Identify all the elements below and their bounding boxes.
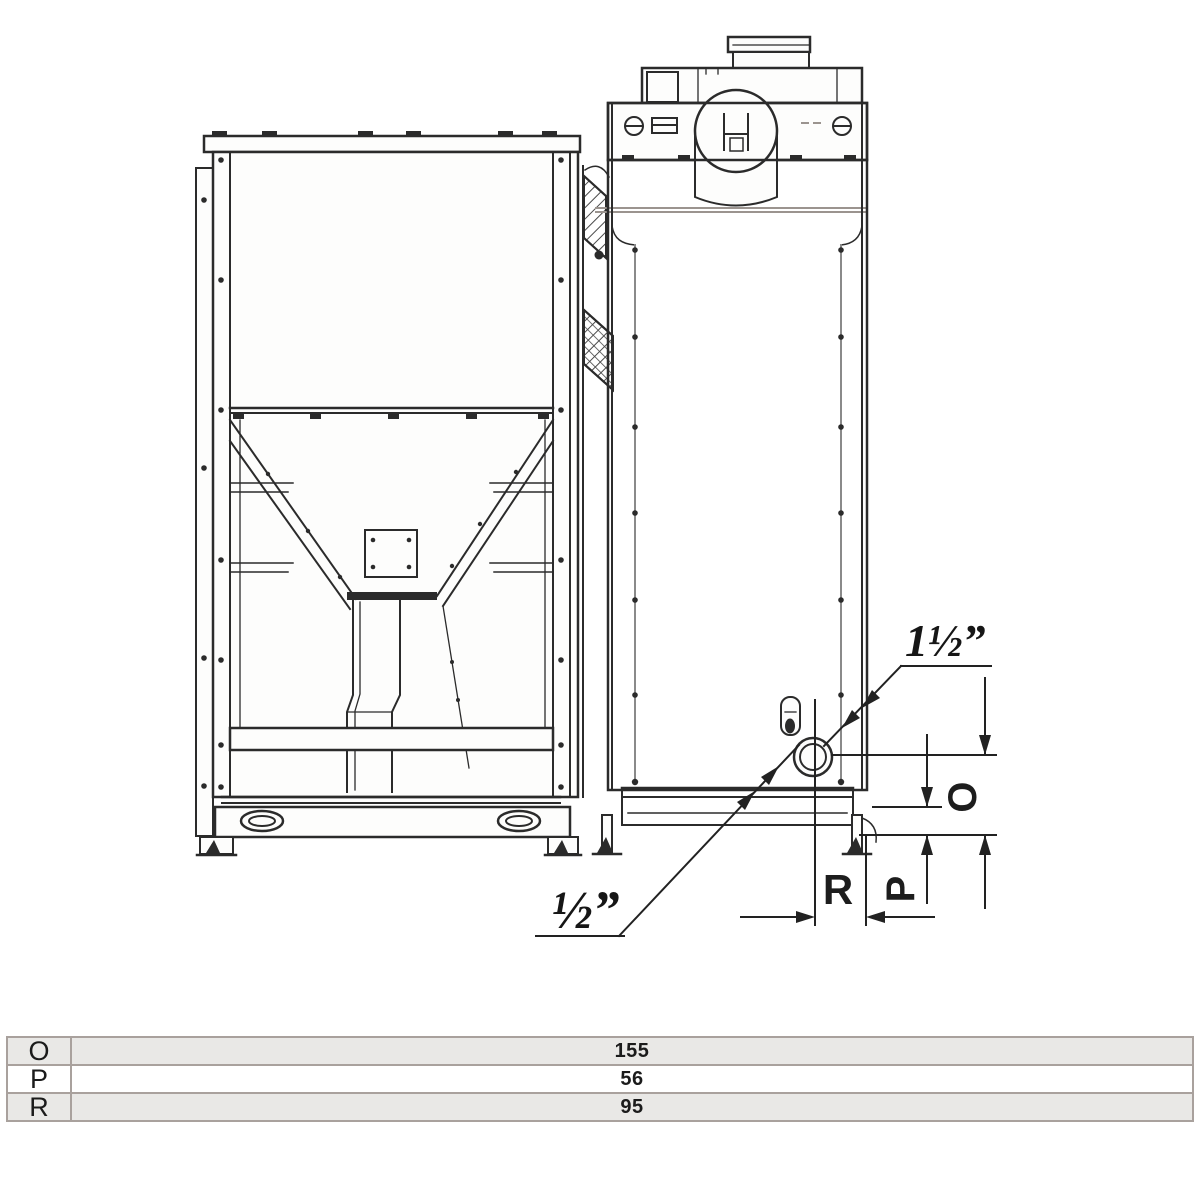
boiler-bolts xyxy=(632,247,844,785)
funnel-access-plate xyxy=(365,530,417,577)
hopper-base xyxy=(215,797,570,837)
boiler-feet xyxy=(593,815,876,854)
pipe-size-large-label: 1½” xyxy=(905,615,986,666)
row-label-cell: P xyxy=(7,1065,71,1093)
table-row: R 95 xyxy=(7,1093,1193,1121)
boiler-unit xyxy=(593,37,876,854)
dimension-annotations: 1½” ½” O P R xyxy=(536,615,996,940)
technical-drawing: 1½” ½” O P R xyxy=(0,0,1200,1010)
boiler-flue-collar xyxy=(695,90,777,206)
row-value-cell: 155 xyxy=(71,1037,1193,1065)
table-row: P 56 xyxy=(7,1065,1193,1093)
boiler-base xyxy=(622,788,853,825)
duct-bolt xyxy=(595,251,604,260)
dimension-table: O 155 P 56 R 95 xyxy=(6,1036,1194,1122)
dim-r-label: R xyxy=(823,866,853,913)
hopper-feet xyxy=(197,837,581,855)
duct-hatch-upper xyxy=(584,176,606,258)
drain-valve xyxy=(781,697,800,735)
row-label-cell: O xyxy=(7,1037,71,1065)
boiler-chimney xyxy=(728,37,810,69)
hopper-unit xyxy=(196,131,581,855)
page: { "drawing": { "labels": { "pipe_large":… xyxy=(0,0,1200,1200)
dim-o-label: O xyxy=(941,781,985,812)
leader-1half-inch xyxy=(824,666,991,746)
dim-p-label: P xyxy=(879,876,923,903)
hopper-beam xyxy=(230,728,553,750)
hopper-top-rail xyxy=(204,136,580,152)
row-value-cell: 95 xyxy=(71,1093,1193,1121)
hopper-left-post xyxy=(196,168,213,836)
table-row: O 155 xyxy=(7,1037,1193,1065)
pipe-size-small-label: ½” xyxy=(552,880,620,940)
row-value-cell: 56 xyxy=(71,1065,1193,1093)
row-label-cell: R xyxy=(7,1093,71,1121)
